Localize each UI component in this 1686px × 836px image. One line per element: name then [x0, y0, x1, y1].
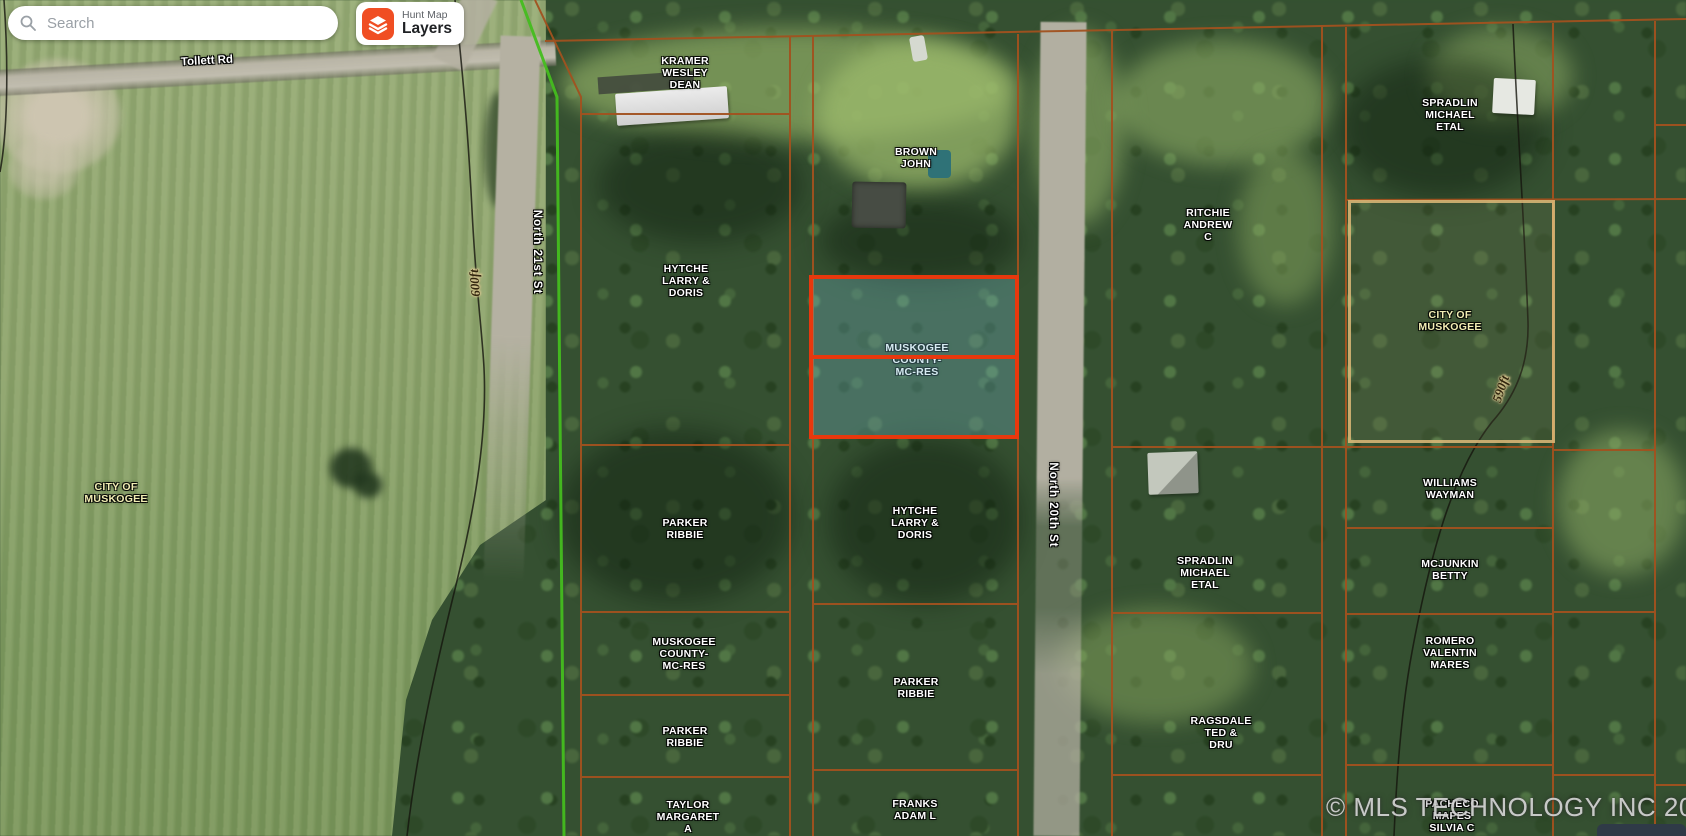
parcel-label-parker-center: PARKER RIBBIE — [893, 676, 938, 700]
map-attribution-control — [1597, 824, 1686, 836]
parcel-label-city-of-muskogee-east: CITY OF MUSKOGEE — [1418, 309, 1481, 333]
parcel-label-hytche-center: HYTCHE LARRY & DORIS — [891, 505, 939, 541]
parcel-label-parker-west-1: PARKER RIBBIE — [662, 517, 707, 541]
parcel-label-ritchie: RITCHIE ANDREW C — [1184, 207, 1233, 243]
layers-button-label: Layers — [402, 21, 452, 37]
parcel-label-muskogee-county-west: MUSKOGEE COUNTY- MC-RES — [652, 636, 715, 672]
contour-lines — [0, 0, 1528, 836]
contour-label-600ft: 600ft — [466, 269, 484, 298]
search-bar[interactable] — [8, 6, 338, 40]
parcel-label-mcjunkin: MCJUNKIN BETTY — [1421, 558, 1478, 582]
search-icon — [20, 15, 36, 31]
road-label-north-21st: North 21st St — [531, 210, 543, 295]
layers-icon — [362, 8, 394, 40]
parcel-label-taylor: TAYLOR MARGARET A — [657, 799, 720, 835]
parcel-label-ragsdale: RAGSDALE TED & DRU — [1191, 715, 1252, 751]
parcel-label-williams: WILLIAMS WAYMAN — [1423, 477, 1477, 501]
map-canvas[interactable]: KRAMER WESLEY DEAN HYTCHE LARRY & DORIS … — [0, 0, 1686, 836]
parcel-label-hytche-west: HYTCHE LARRY & DORIS — [662, 263, 710, 299]
layers-button[interactable]: Hunt Map Layers — [356, 2, 464, 45]
road-label-north-20th: North 20th St — [1047, 462, 1059, 547]
parcel-label-franks: FRANKS ADAM L — [892, 798, 937, 822]
parcel-label-parker-west-2: PARKER RIBBIE — [662, 725, 707, 749]
search-input[interactable] — [45, 14, 326, 33]
parcel-label-kramer: KRAMER WESLEY DEAN — [661, 55, 709, 91]
parcel-label-city-of-muskogee-west: CITY OF MUSKOGEE — [84, 481, 147, 505]
city-limit-line — [521, 0, 564, 836]
parcel-label-spradlin-ne: SPRADLIN MICHAEL ETAL — [1422, 97, 1478, 133]
selected-parcel-highlight-south[interactable] — [809, 355, 1019, 439]
parcel-label-spradlin-center: SPRADLIN MICHAEL ETAL — [1177, 555, 1233, 591]
copyright-watermark: © MLS TECHNOLOGY INC 2025 — [1326, 792, 1686, 823]
selected-parcel-highlight-north[interactable] — [809, 275, 1019, 359]
parcel-label-brown: BROWN JOHN — [895, 146, 937, 170]
parcel-label-romero: ROMERO VALENTIN MARES — [1423, 635, 1477, 671]
